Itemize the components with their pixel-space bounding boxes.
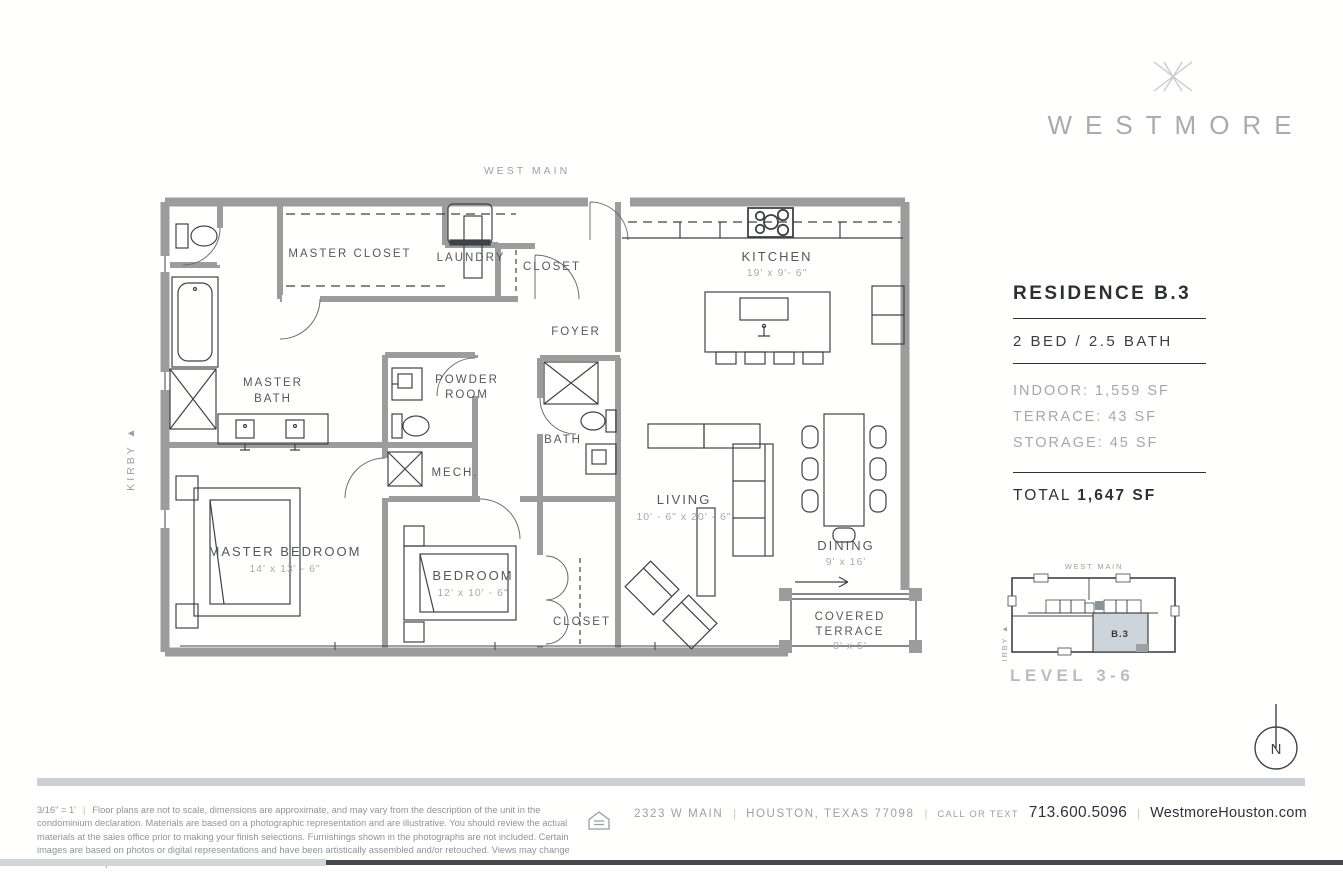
room-label-bath: BATH xyxy=(544,434,582,446)
island-icon xyxy=(705,292,830,364)
bathtub-icon xyxy=(172,277,218,367)
washer-dryer-icon xyxy=(448,204,492,245)
footer-city: HOUSTON, TEXAS 77098 xyxy=(746,808,914,820)
storage-sf: STORAGE: 45 SF xyxy=(1013,430,1206,456)
total-sf: TOTAL 1,647 SF xyxy=(1013,487,1206,505)
room-dims-kitchen: 19' x 9'- 6" xyxy=(747,267,808,279)
footer-phone-link[interactable]: 713.600.5096 xyxy=(1029,804,1127,822)
total-label: TOTAL xyxy=(1013,487,1071,504)
westmore-monogram-icon xyxy=(1152,60,1194,94)
level-label: LEVEL 3-6 xyxy=(1010,666,1134,686)
kitchen-counter xyxy=(622,222,903,238)
room-label-terrace-2: TERRACE xyxy=(816,626,885,638)
room-label-kitchen: KITCHEN xyxy=(741,249,812,264)
floor-plan: WEST MAIN KIRBY ▲ xyxy=(120,158,940,673)
info-panel: RESIDENCE B.3 2 BED / 2.5 BATH INDOOR: 1… xyxy=(1013,283,1206,505)
room-label-powder-1: POWDER xyxy=(435,374,499,386)
divider-rule xyxy=(1013,318,1206,319)
room-label-powder-2: ROOM xyxy=(445,389,489,401)
lounge-chair-icon-2 xyxy=(663,595,717,649)
room-label-terrace-1: COVERED xyxy=(815,611,886,623)
bath2-vanity-icon xyxy=(586,444,616,474)
pipe-separator: | xyxy=(924,808,927,820)
keyplan-unit-label: B.3 xyxy=(1111,629,1129,640)
room-label-mech: MECH. xyxy=(431,467,478,479)
sofa-icon xyxy=(648,424,773,556)
keyplan-street-top: WEST MAIN xyxy=(1065,562,1124,571)
keyplan-core xyxy=(1095,601,1104,610)
room-label-master-bath-2: BATH xyxy=(254,393,292,405)
footer-call-label: CALL OR TEXT xyxy=(937,809,1018,820)
fridge-icon xyxy=(872,286,904,344)
divider-rule xyxy=(1013,363,1206,364)
terrace-sf: TERRACE: 43 SF xyxy=(1013,404,1206,430)
powder-toilet-icon xyxy=(392,414,429,438)
room-dims-living: 10' - 6" x 20' - 6" xyxy=(636,511,731,523)
room-label-master-bath-1: MASTER xyxy=(243,377,303,389)
pipe-separator: | xyxy=(83,805,85,815)
divider-rule xyxy=(1013,472,1206,473)
room-label-bedroom: BEDROOM xyxy=(432,568,513,583)
footer-divider-bar xyxy=(37,778,1305,786)
footer-address: 2323 W MAIN xyxy=(634,808,723,820)
shower-icon xyxy=(170,369,216,429)
bed-bath: 2 BED / 2.5 BATH xyxy=(1013,333,1206,350)
equal-housing-icon xyxy=(588,810,610,831)
room-label-laundry: LAUNDRY xyxy=(437,252,506,264)
street-label-west-main: WEST MAIN xyxy=(484,165,570,177)
bath2-shower-icon xyxy=(544,362,598,404)
pipe-separator: | xyxy=(733,808,736,820)
room-dims-dining: 9' x 16' xyxy=(826,556,867,568)
compass-north-label: N xyxy=(1271,741,1282,758)
room-dims-bedroom: 12' x 10' - 6" xyxy=(437,587,508,599)
room-label-living: LIVING xyxy=(657,492,712,507)
footer-website-link[interactable]: WestmoreHouston.com xyxy=(1150,805,1307,821)
bath2-toilet-icon xyxy=(581,410,616,432)
room-label-closet-bottom: CLOSET xyxy=(553,616,611,628)
powder-sink-icon xyxy=(392,368,422,400)
brand-name: WESTMORE xyxy=(1036,110,1316,141)
bottom-bar-dark xyxy=(326,860,1343,865)
room-label-closet-top: CLOSET xyxy=(523,261,581,273)
mech-unit-icon xyxy=(388,452,422,486)
bed-icon xyxy=(404,526,516,642)
lounge-chair-icon xyxy=(625,561,679,615)
room-label-foyer: FOYER xyxy=(551,326,601,338)
room-dims-master-bedroom: 14' x 13' - 6" xyxy=(249,563,320,575)
pipe-separator: | xyxy=(1137,808,1140,820)
keyplan-street-left: KIRBY ▲ xyxy=(1000,624,1009,661)
terrace-arrow-icon xyxy=(795,577,848,587)
street-label-kirby: KIRBY ▲ xyxy=(125,425,137,491)
room-label-dining: DINING xyxy=(817,538,875,553)
residence-title: RESIDENCE B.3 xyxy=(1013,283,1206,305)
room-label-master-bedroom: MASTER BEDROOM xyxy=(209,544,362,559)
brochure-page: WESTMORE WEST MAIN KIRBY ▲ xyxy=(0,0,1343,872)
total-value: 1,647 SF xyxy=(1077,487,1156,504)
keyplan-corner xyxy=(1136,644,1148,652)
compass: N xyxy=(1243,700,1313,775)
dining-table-icon xyxy=(802,414,886,542)
toilet-icon xyxy=(176,224,217,248)
scale-note: 3/16" = 1' xyxy=(37,805,76,815)
bottom-bar-light xyxy=(0,859,326,866)
indoor-sf: INDOOR: 1,559 SF xyxy=(1013,378,1206,404)
key-plan: WEST MAIN KIRBY ▲ B.3 xyxy=(998,556,1188,661)
room-dims-terrace: 8' x 5' xyxy=(833,640,867,652)
footer-contact-row: 2323 W MAIN | HOUSTON, TEXAS 77098 | CAL… xyxy=(634,804,1307,822)
room-label-master-closet: MASTER CLOSET xyxy=(288,248,411,260)
